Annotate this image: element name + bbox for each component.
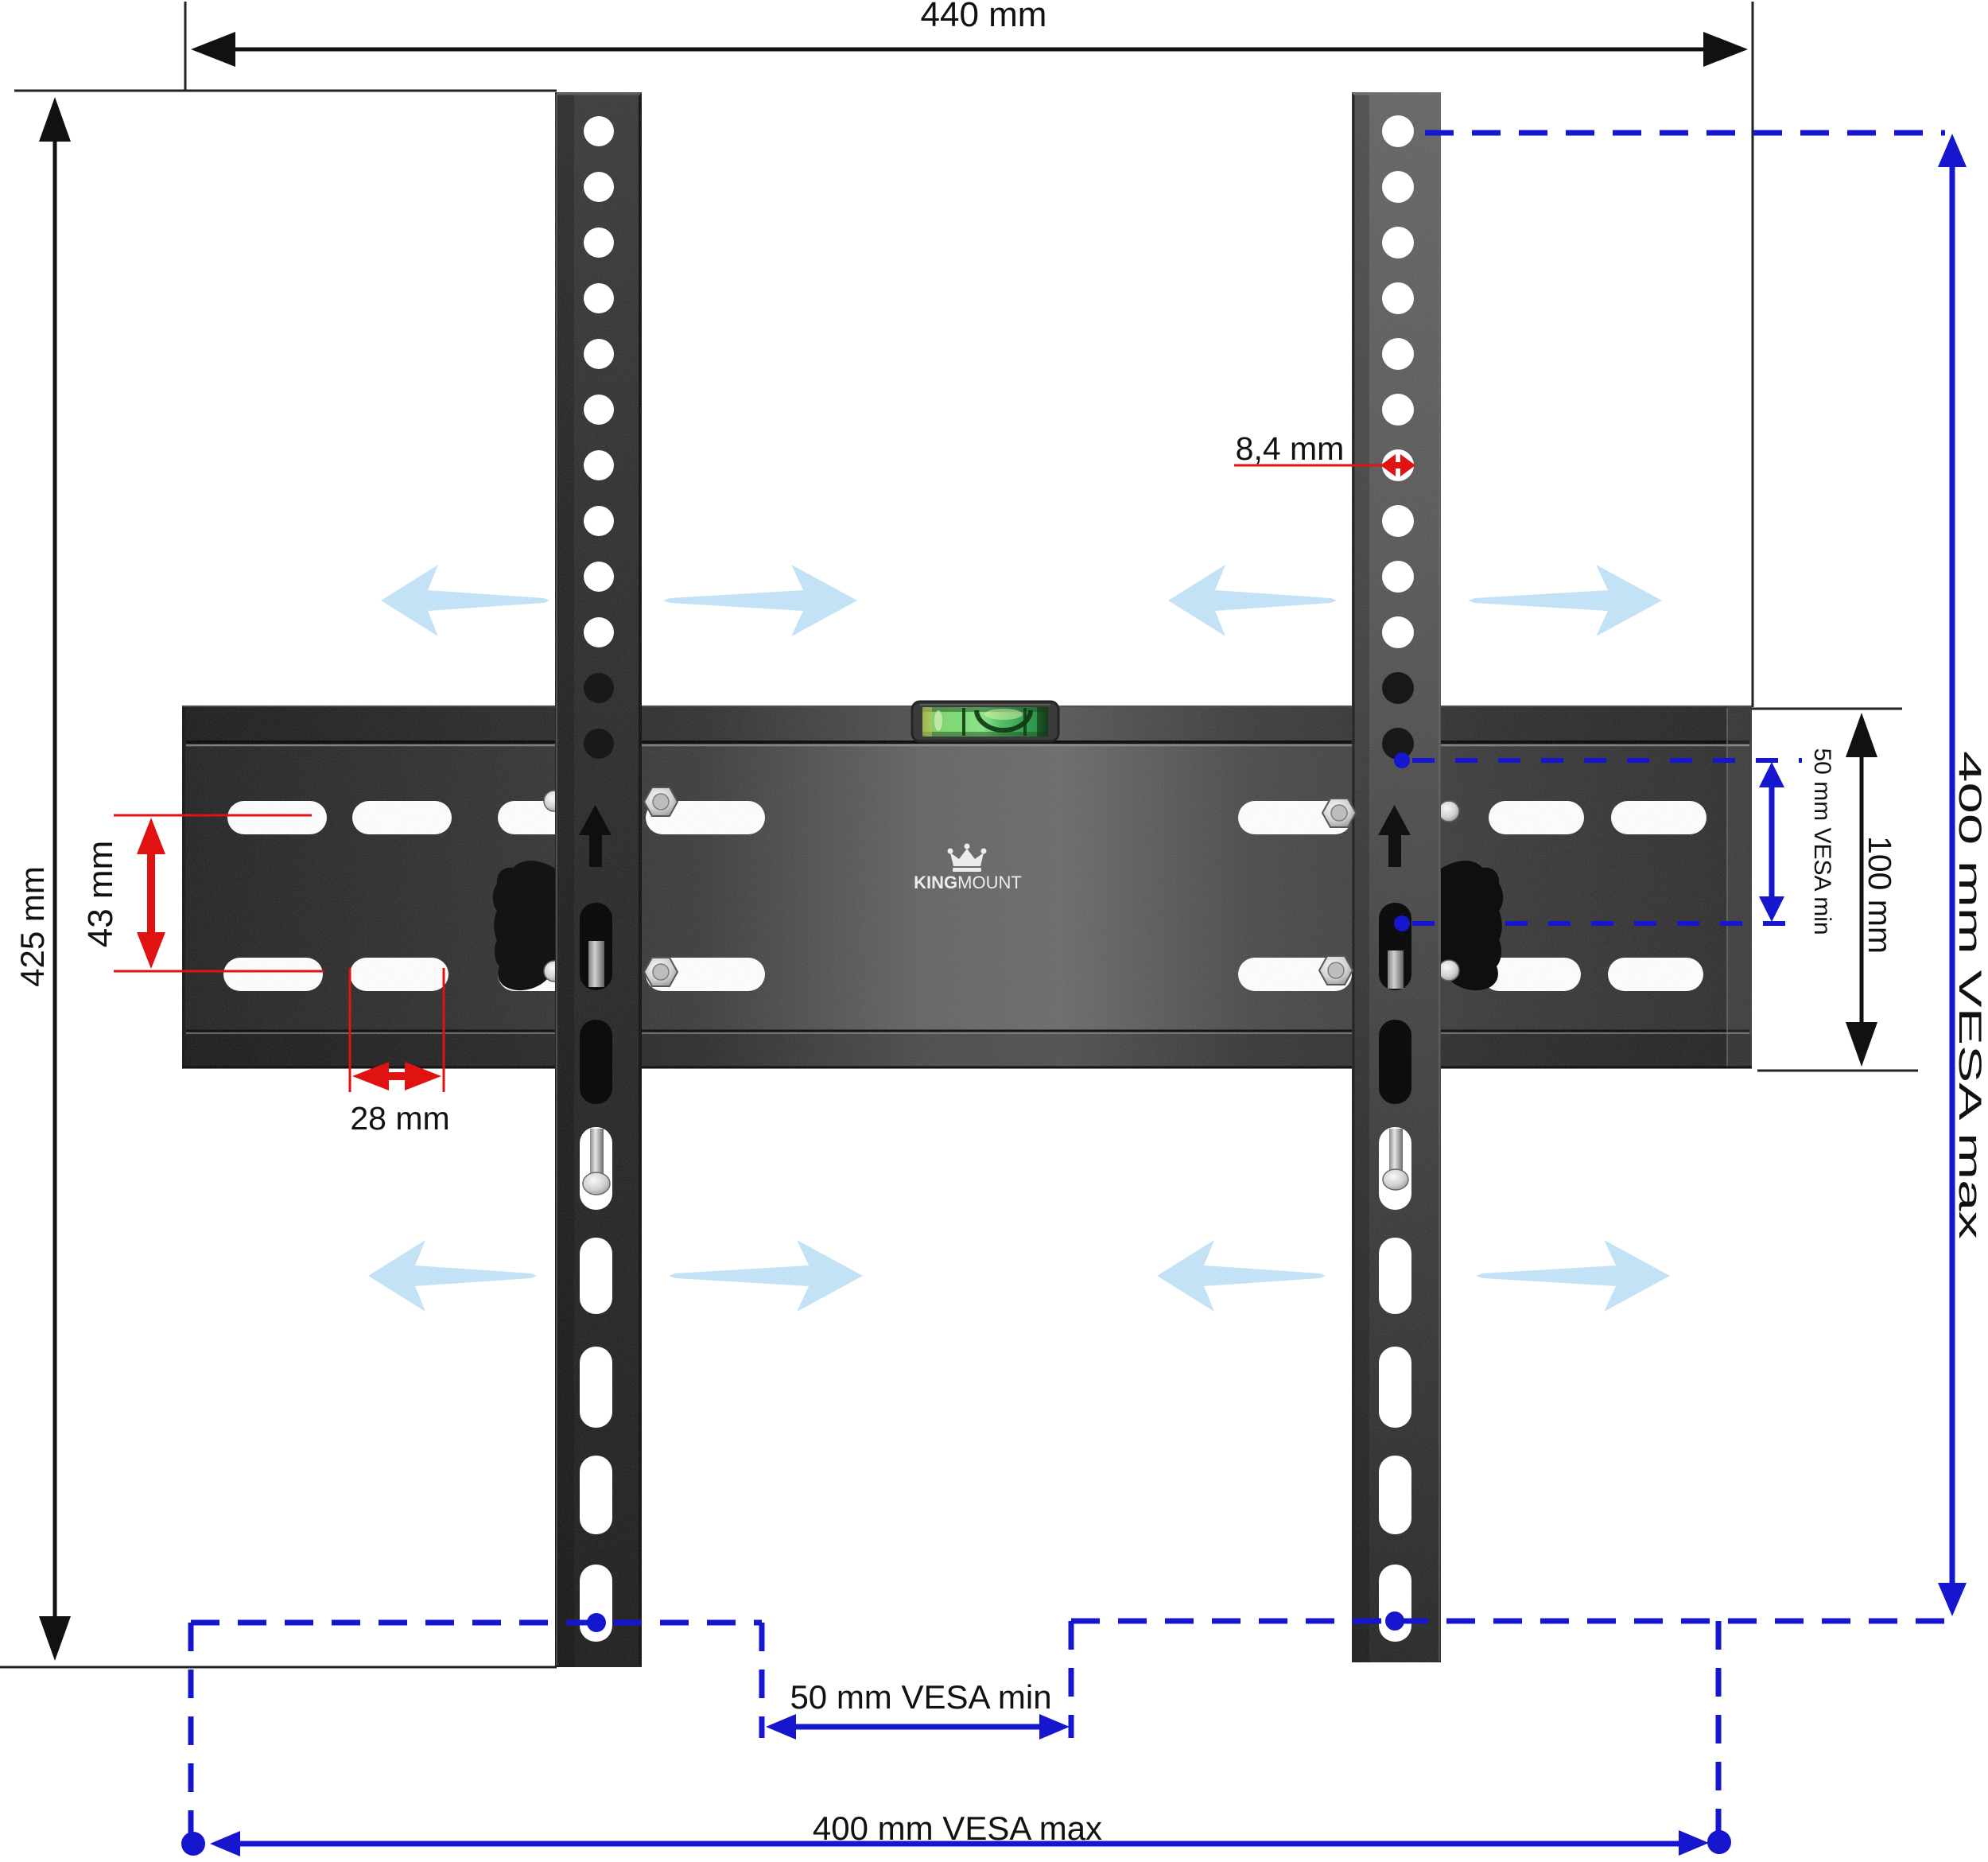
svg-text:400 mm VESA max: 400 mm VESA max xyxy=(1952,751,1988,1239)
svg-text:440 mm: 440 mm xyxy=(921,0,1047,34)
svg-text:425 mm: 425 mm xyxy=(14,866,51,987)
svg-text:KINGMOUNT: KINGMOUNT xyxy=(914,873,1022,892)
svg-text:28 mm: 28 mm xyxy=(350,1100,449,1137)
svg-text:50 mm VESA min: 50 mm VESA min xyxy=(1809,748,1835,935)
svg-text:8,4 mm: 8,4 mm xyxy=(1236,430,1345,467)
svg-text:43 mm: 43 mm xyxy=(81,841,120,947)
svg-text:50 mm VESA min: 50 mm VESA min xyxy=(790,1678,1051,1716)
svg-text:100 mm: 100 mm xyxy=(1862,836,1898,954)
